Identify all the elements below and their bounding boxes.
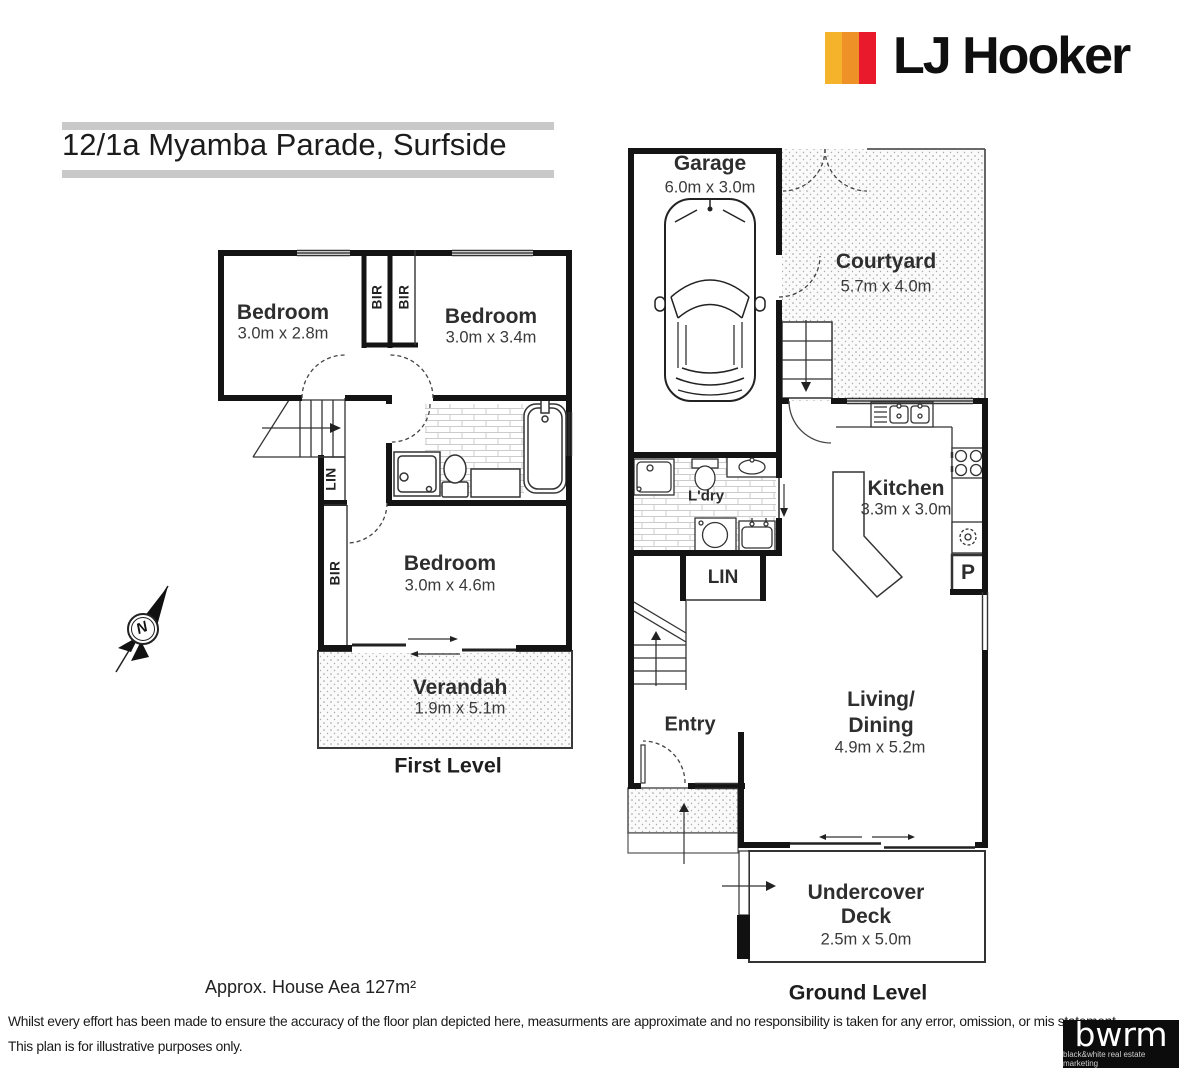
bedroom1-label: Bedroom [237, 301, 329, 325]
kitchen-dims: 3.3m x 3.0m [861, 501, 952, 520]
laundry-tub-icon [739, 518, 775, 551]
living-dims: 4.9m x 5.2m [835, 739, 926, 758]
entry-label: Entry [664, 714, 715, 737]
courtyard-label: Courtyard [836, 250, 936, 274]
living-sliding-door [790, 834, 975, 850]
porch-step [628, 833, 738, 853]
living-label-line2: Dining [848, 714, 913, 738]
first-level-title: First Level [394, 754, 502, 779]
disclaimer-line1: Whilst every effort has been made to ens… [8, 1014, 1119, 1029]
garage-dims: 6.0m x 3.0m [665, 179, 756, 198]
cooktop-icon [952, 448, 985, 478]
car-icon [655, 199, 765, 401]
laundry-sliding-door-arrow [780, 484, 788, 517]
laundry-sink-icon [727, 456, 777, 477]
pantry-label: P [961, 561, 975, 585]
courtyard-dims: 5.7m x 4.0m [841, 278, 932, 297]
courtyard-steps-icon [782, 320, 832, 398]
washing-machine-icon [695, 518, 736, 552]
laundry-label: L'dry [688, 488, 724, 505]
front-door-leaf [641, 745, 645, 783]
laundry-shower-icon [634, 459, 674, 495]
ljhooker-brand-wordmark: LJ Hooker [893, 26, 1129, 86]
title-divider-bottom [62, 170, 554, 178]
dishwasher-icon [952, 522, 985, 553]
bedroom2-dims: 3.0m x 3.4m [446, 329, 537, 348]
lin-ground-label: LIN [708, 567, 739, 589]
verandah-label: Verandah [413, 676, 508, 700]
bathtub-icon [524, 400, 566, 493]
logo-stripe-yellow [825, 32, 842, 84]
floor-plan-page: LJ Hooker 12/1a Myamba Parade, Surfside [0, 0, 1198, 1080]
ground-level-title: Ground Level [789, 981, 928, 1006]
page-title: 12/1a Myamba Parade, Surfside [62, 127, 507, 163]
ground-stairs-arrow-icon [651, 631, 661, 640]
ground-stairs-icon [631, 601, 686, 690]
bedroom2-label: Bedroom [445, 305, 537, 329]
vanity-icon [471, 469, 520, 497]
bir2-label: BIR [397, 285, 412, 310]
kitchen-label: Kitchen [867, 477, 944, 501]
shower-icon [394, 452, 440, 496]
verandah-dims: 1.9m x 5.1m [415, 700, 506, 719]
bedroom3-label: Bedroom [404, 552, 496, 576]
toilet-icon [442, 455, 468, 497]
lin-first-level-label: LIN [324, 467, 339, 490]
disclaimer-line2: This plan is for illustrative purposes o… [8, 1039, 242, 1054]
stairs-arrow-icon [330, 423, 341, 433]
living-label-line1: Living/ [847, 688, 915, 712]
bwrm-tagline: black&white real estate marketing [1063, 1050, 1179, 1068]
kitchen-door-arc [789, 401, 831, 443]
bir3-label: BIR [328, 561, 343, 586]
bedroom3-dims: 3.0m x 4.6m [405, 577, 496, 596]
garage-label: Garage [674, 152, 746, 176]
deck-label-line1: Undercover [808, 881, 925, 905]
bwrm-brand-wordmark: bwrm [1074, 1020, 1167, 1050]
bir1-label: BIR [370, 285, 385, 310]
deck-label-line2: Deck [841, 905, 891, 929]
logo-stripe-orange [842, 32, 859, 84]
ljhooker-logo-stripes-icon [825, 32, 876, 84]
bwrm-logo: bwrm black&white real estate marketing [1063, 1020, 1179, 1068]
bedroom1-dims: 3.0m x 2.8m [238, 325, 329, 344]
logo-stripe-red [859, 32, 876, 84]
area-note: Approx. House Aea 127m² [205, 977, 416, 998]
deck-dims: 2.5m x 5.0m [821, 931, 912, 950]
kitchen-sink-icon [871, 402, 933, 427]
